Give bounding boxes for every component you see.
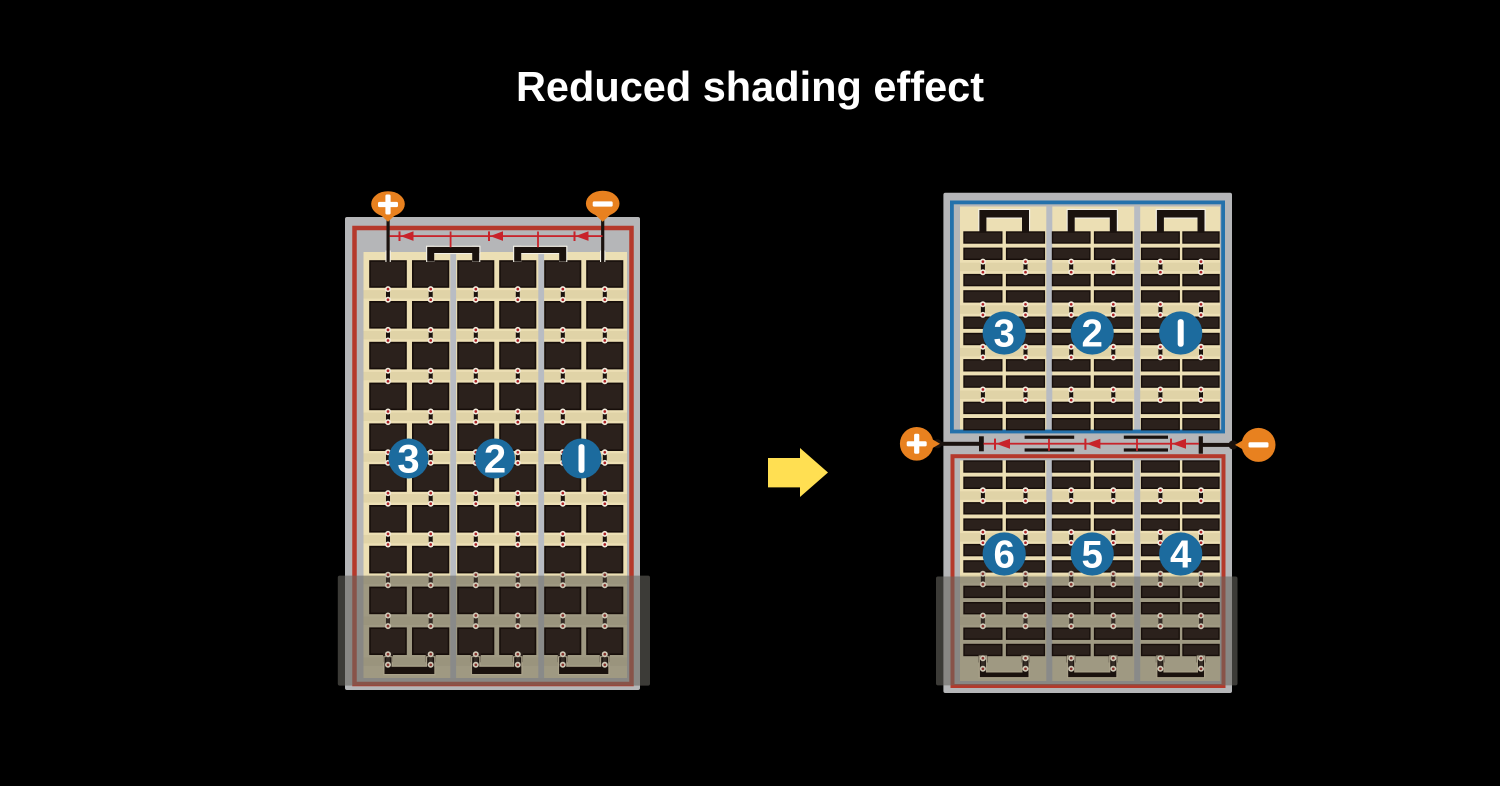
svg-text:Reduced shading effect: Reduced shading effect <box>516 63 984 110</box>
svg-text:2: 2 <box>1081 313 1102 356</box>
svg-text:4: 4 <box>1170 534 1192 577</box>
svg-text:3: 3 <box>993 313 1014 356</box>
svg-text:5: 5 <box>1081 534 1102 577</box>
svg-text:3: 3 <box>397 438 419 482</box>
svg-text:2: 2 <box>484 438 506 482</box>
svg-text:6: 6 <box>993 534 1014 577</box>
